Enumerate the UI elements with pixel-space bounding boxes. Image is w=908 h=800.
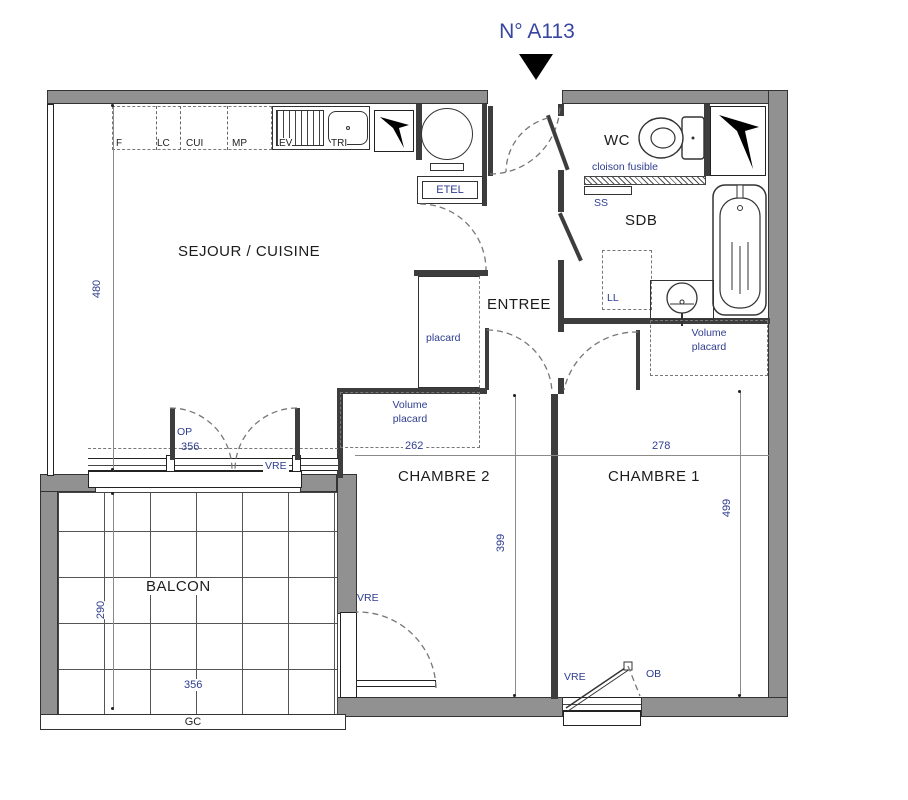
chambre1-door-arc bbox=[564, 330, 638, 390]
room-label-sdb: SDB bbox=[625, 212, 657, 229]
wall bbox=[768, 90, 788, 714]
dim-line bbox=[113, 106, 114, 471]
kitchen-divider bbox=[180, 106, 181, 150]
op-label: OP bbox=[177, 426, 192, 438]
volume-placard-sdb: Volume placard bbox=[650, 320, 768, 376]
sejour-door-arc bbox=[420, 204, 486, 270]
wall bbox=[558, 260, 564, 318]
door-frame bbox=[340, 612, 357, 698]
dim-line bbox=[355, 455, 770, 456]
railing: GC bbox=[40, 714, 346, 730]
dim-dot bbox=[111, 104, 114, 107]
etel-box: ETEL bbox=[417, 176, 483, 204]
wall bbox=[47, 104, 54, 476]
duct-shaft-icon bbox=[374, 110, 414, 152]
dim-balcon-width: 356 bbox=[182, 679, 204, 691]
washing-machine-label: LL bbox=[607, 292, 619, 304]
towel-rail-label: SS bbox=[594, 197, 608, 209]
kitchen-label-ev: EV bbox=[279, 138, 292, 149]
ob-label: OB bbox=[646, 668, 661, 680]
dim-dot bbox=[738, 390, 741, 393]
dim-dot bbox=[111, 707, 114, 710]
dim-chambre2-width: 262 bbox=[403, 440, 425, 452]
room-label-entree: ENTREE bbox=[487, 296, 551, 313]
dim-dot bbox=[111, 468, 114, 471]
dim-dot bbox=[111, 492, 114, 495]
apartment-number: N° A113 bbox=[452, 20, 622, 44]
kitchen-label-cui: CUI bbox=[186, 138, 203, 149]
balcony-door-arc bbox=[356, 612, 436, 688]
duct-shaft-icon bbox=[710, 106, 766, 176]
wall bbox=[337, 697, 563, 717]
entrance-arrow-icon bbox=[519, 54, 553, 80]
dim-balcon-height: 290 bbox=[95, 601, 107, 619]
dim-sejour-width: 356 bbox=[181, 441, 199, 453]
kitchen-divider bbox=[227, 106, 228, 150]
dim-dot bbox=[513, 394, 516, 397]
volume-placard-label: Volume placard bbox=[679, 327, 739, 354]
floor-plan: N° A113 F LC CUI MP EV TRI ETEL bbox=[0, 0, 908, 800]
sink-drain-icon bbox=[346, 126, 350, 130]
wall bbox=[641, 697, 788, 717]
placard-label: placard bbox=[426, 332, 460, 344]
dim-dot bbox=[738, 694, 741, 697]
dim-line bbox=[113, 494, 114, 710]
bathtub-icon bbox=[712, 184, 768, 321]
wall bbox=[40, 474, 58, 717]
kitchen-label-tri: TRI bbox=[331, 138, 347, 149]
chambre2-door-arc bbox=[487, 330, 552, 392]
kitchen-label-fridge: F bbox=[116, 138, 122, 149]
wall bbox=[47, 90, 488, 104]
railing-label: GC bbox=[185, 716, 202, 728]
wall bbox=[337, 474, 357, 614]
vre-label: VRE bbox=[263, 460, 289, 472]
dim-line bbox=[515, 396, 516, 696]
kitchen-label-lc: LC bbox=[157, 138, 170, 149]
room-label-wc: WC bbox=[604, 132, 630, 149]
wall bbox=[300, 474, 337, 492]
wall bbox=[551, 394, 558, 699]
room-label-chambre2: CHAMBRE 2 bbox=[398, 468, 490, 485]
window-sill bbox=[88, 471, 302, 488]
dim-line bbox=[740, 392, 741, 696]
wall bbox=[558, 170, 564, 212]
wc-door-arc bbox=[506, 116, 562, 172]
room-label-sejour: SEJOUR / CUISINE bbox=[178, 243, 320, 260]
dim-dot bbox=[513, 694, 516, 697]
dim-chambre2-height: 399 bbox=[495, 534, 507, 552]
dim-chambre1-height: 499 bbox=[721, 499, 733, 517]
cloison-fusible-label: cloison fusible bbox=[592, 161, 658, 173]
ob-window-sash bbox=[558, 656, 644, 714]
water-heater-icon bbox=[421, 108, 473, 160]
french-door-arc bbox=[170, 408, 232, 470]
room-label-chambre1: CHAMBRE 1 bbox=[608, 468, 700, 485]
etel-label: ETEL bbox=[436, 184, 464, 196]
vre-label: VRE bbox=[357, 592, 379, 604]
room-label-balcon: BALCON bbox=[143, 578, 214, 595]
towel-rail-icon bbox=[584, 186, 632, 195]
vre-label: VRE bbox=[564, 671, 586, 683]
wall bbox=[562, 90, 788, 104]
kitchen-label-mp: MP bbox=[232, 138, 247, 149]
dim-chambre1-width: 278 bbox=[650, 440, 672, 452]
volume-placard-label: Volume placard bbox=[380, 399, 440, 426]
cloison-fusible-wall bbox=[584, 176, 706, 185]
dim-sejour-height: 480 bbox=[91, 280, 103, 298]
sdb-door-leaf bbox=[558, 212, 583, 261]
shelf-icon bbox=[430, 163, 464, 171]
